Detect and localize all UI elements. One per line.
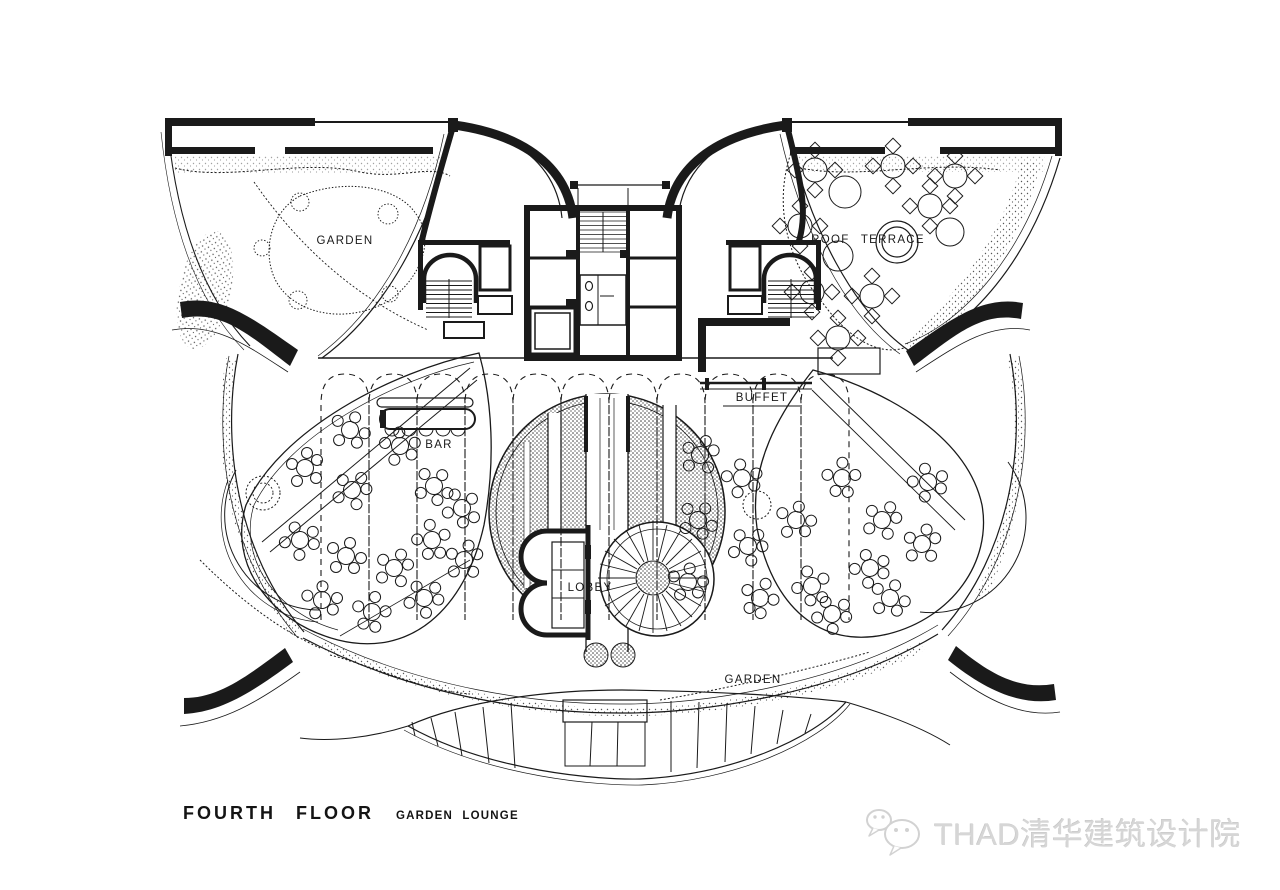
dining-tables-left bbox=[274, 410, 489, 637]
spiral-stair bbox=[598, 522, 714, 636]
bar-counter bbox=[377, 398, 475, 436]
watermark-text: THAD清华建筑设计院 bbox=[934, 809, 1241, 854]
watermark: THAD清华建筑设计院 bbox=[864, 804, 1241, 858]
wechat-icon bbox=[864, 804, 928, 858]
label-garden-bottom: GARDEN bbox=[724, 674, 781, 686]
service-core bbox=[418, 130, 821, 372]
room-subtitle: GARDEN LOUNGE bbox=[396, 810, 519, 822]
label-buffet: BUFFET bbox=[736, 392, 789, 404]
label-lobby: LOBBY bbox=[568, 582, 613, 594]
label-bar: BAR bbox=[425, 439, 453, 451]
lounge-left bbox=[221, 353, 491, 644]
floor-title: FOURTH FLOOR bbox=[183, 803, 374, 824]
central-atrium bbox=[489, 394, 725, 667]
label-roof-terrace: ROOF TERRACE bbox=[811, 234, 925, 246]
floor-plan-drawing: GARDEN ROOF TERRACE BUFFET BAR LOBBY GAR… bbox=[0, 0, 1280, 890]
drawing-title: FOURTH FLOOR GARDEN LOUNGE bbox=[183, 803, 519, 824]
label-garden-top: GARDEN bbox=[316, 235, 373, 247]
